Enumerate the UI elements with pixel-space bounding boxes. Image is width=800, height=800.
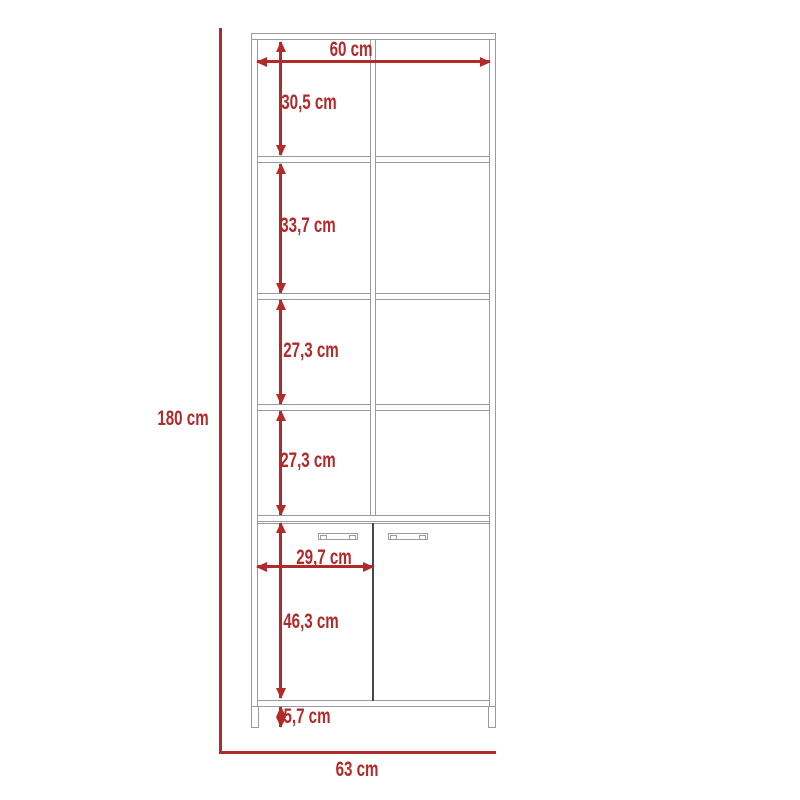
dim-arrow-section-3 <box>279 300 282 404</box>
left-leg <box>251 706 259 728</box>
dim-label-base-height: 5,7 cm <box>283 705 330 729</box>
left-door-handle <box>318 533 358 540</box>
cabinet-right-side-panel <box>489 33 496 707</box>
dim-label-total-height: 180 cm <box>157 407 208 431</box>
dim-line-base-width <box>219 751 496 754</box>
dimension-diagram: 60 cm 30,5 cm 33,7 cm 27,3 cm 27,3 cm 29… <box>0 0 800 800</box>
door-gap-line <box>372 523 374 701</box>
right-door <box>373 523 490 701</box>
dim-arrow-door-height <box>279 523 282 698</box>
dim-line-total-height <box>219 28 222 754</box>
dim-label-door-height: 46,3 cm <box>283 610 338 634</box>
dim-label-section-3: 27,3 cm <box>283 339 338 363</box>
dim-label-door-width: 29,7 cm <box>296 546 351 570</box>
dim-label-section-2: 33,7 cm <box>280 214 335 238</box>
dim-arrow-base-height <box>279 707 282 727</box>
dim-arrow-top-width <box>257 60 490 63</box>
dim-label-section-1: 30,5 cm <box>281 91 336 115</box>
right-leg <box>488 706 496 728</box>
dim-label-section-4: 27,3 cm <box>280 449 335 473</box>
shelf-4 <box>257 515 490 522</box>
dim-label-base-width: 63 cm <box>336 758 379 782</box>
center-vertical-divider <box>370 39 376 516</box>
dim-label-top-width: 60 cm <box>330 38 373 62</box>
right-door-handle <box>388 533 428 540</box>
